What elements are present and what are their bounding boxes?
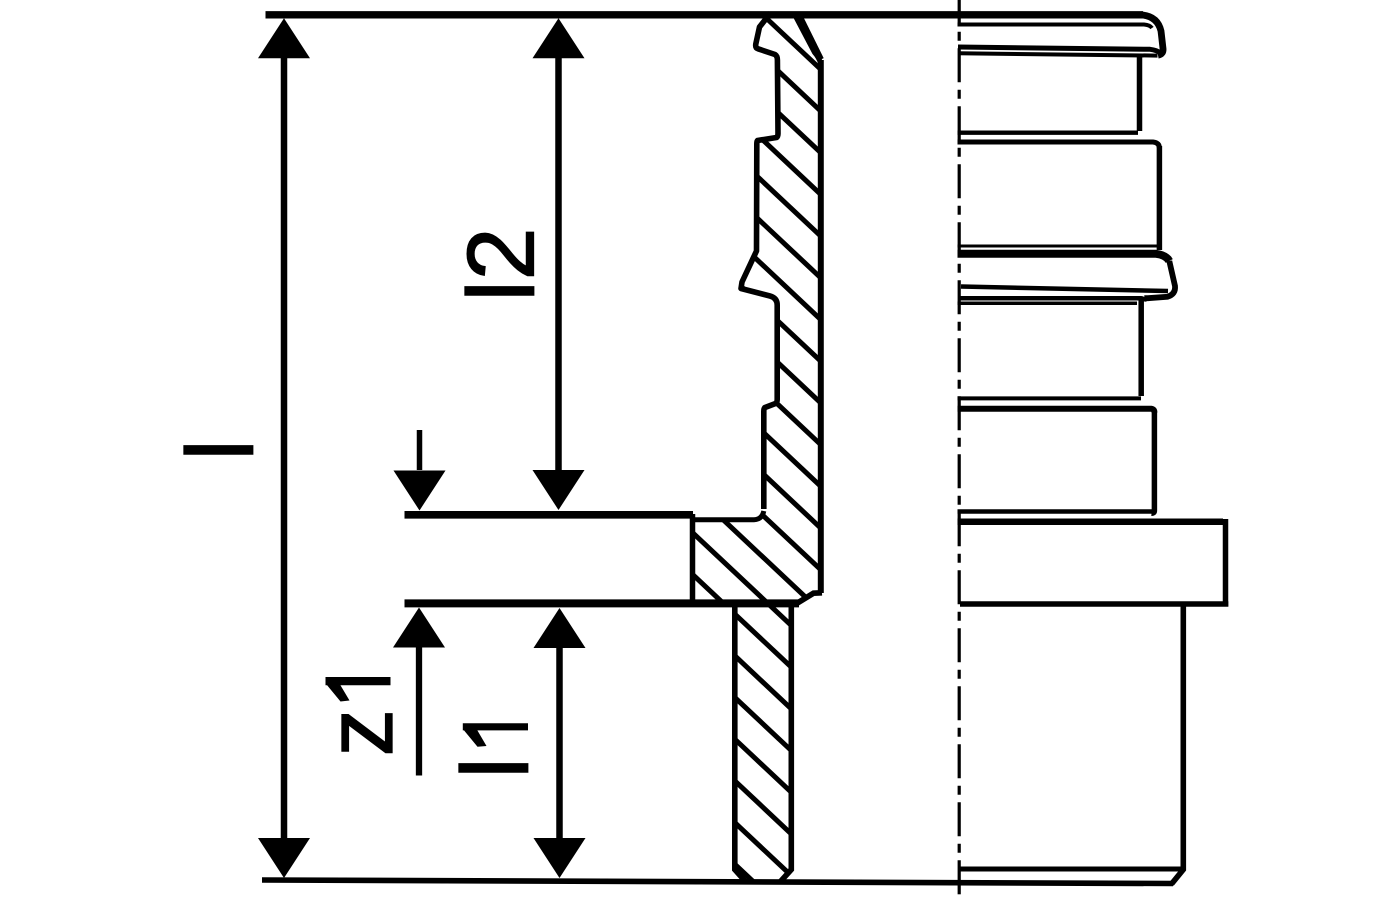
svg-text:z: z [307,709,413,757]
svg-text:l: l [168,439,274,460]
svg-text:l2: l2 [449,228,555,302]
svg-text:l: l [443,757,549,778]
